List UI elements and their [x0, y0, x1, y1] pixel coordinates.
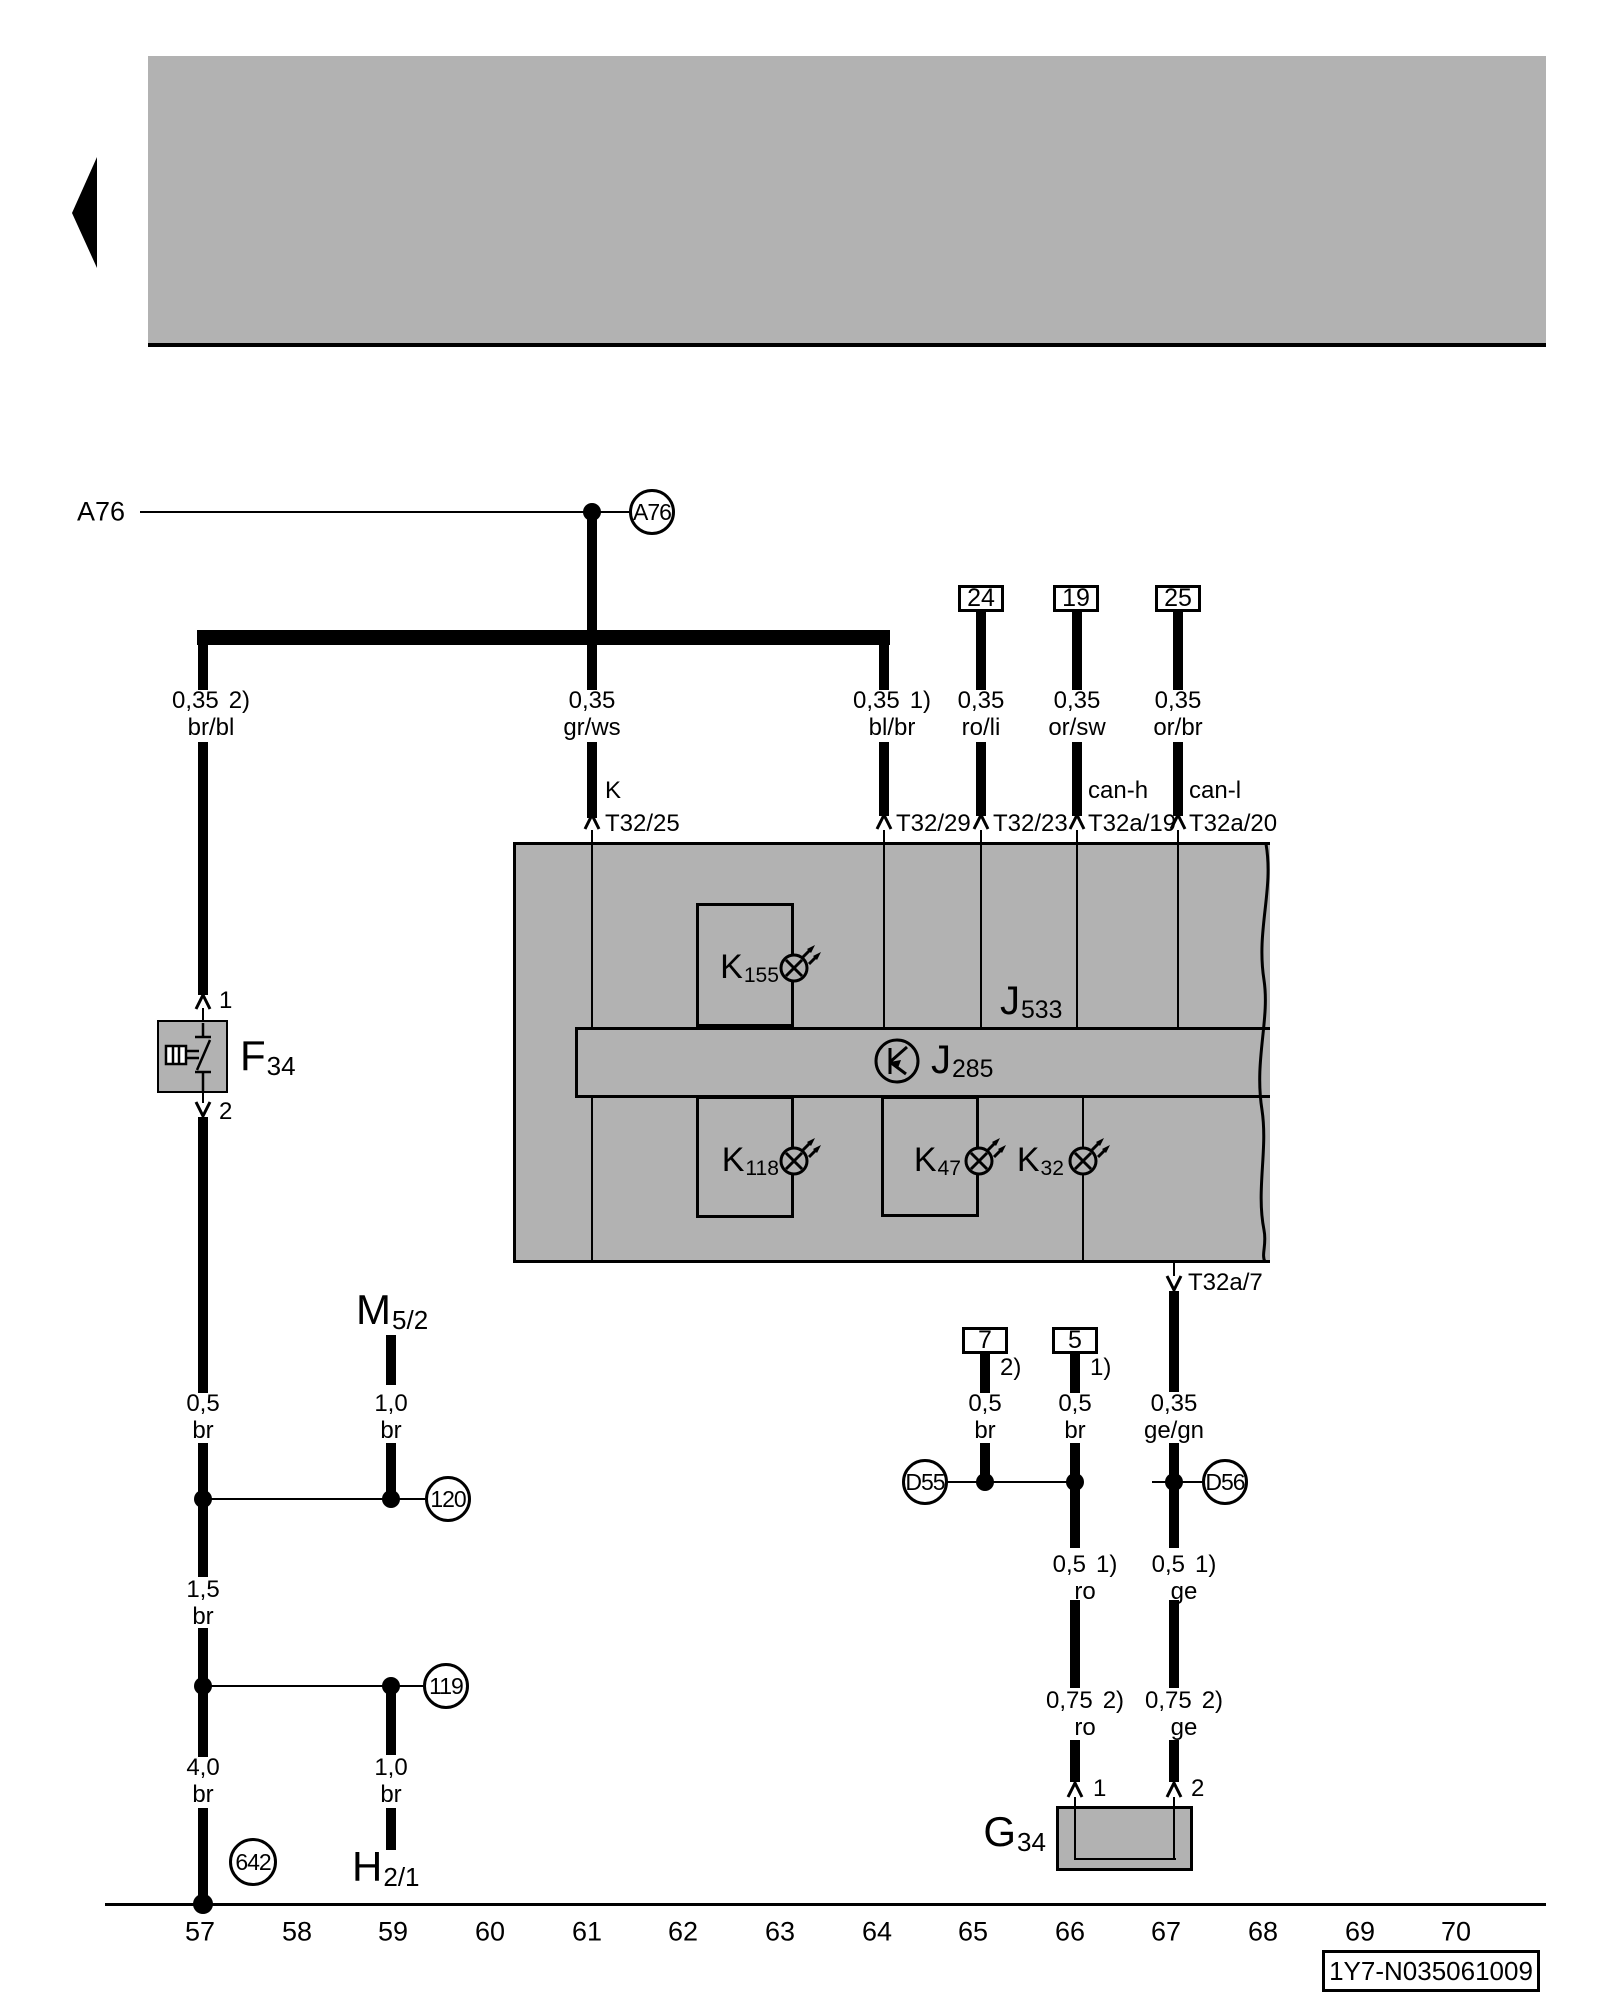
- connector-pin-icon: [1070, 815, 1084, 829]
- wire-segment: [198, 637, 208, 690]
- terminal-7-note: 2): [1000, 1354, 1021, 1382]
- wire-segment: [1072, 742, 1082, 816]
- wire-segment: [1070, 1740, 1080, 1782]
- diagram-part-number: 1Y7-N035061009: [1322, 1950, 1540, 1992]
- wire-segment: [976, 611, 986, 690]
- wire-label-10br-bottom: 1,0 br: [374, 1754, 407, 1808]
- terminal-5: 5: [1052, 1327, 1098, 1354]
- wire-segment: [1173, 611, 1183, 690]
- junction-dot: [194, 1677, 212, 1695]
- pin-t32-29-label: T32/29: [896, 810, 971, 838]
- wire-label-05br-mid: 0,5 br: [1058, 1390, 1091, 1444]
- wire-segment: [1169, 1443, 1179, 1548]
- connector-pin-icon: [196, 1102, 210, 1116]
- g34-pin-1-label: 1: [1093, 1775, 1106, 1803]
- wire-label-05ro: 0,51) ro: [1053, 1551, 1118, 1605]
- internal-line: [980, 845, 982, 1027]
- wire-segment: [198, 1443, 208, 1577]
- label-f34: F34: [240, 1032, 296, 1082]
- pin-can-h-label: can-h: [1088, 777, 1148, 805]
- wire-segment: [980, 1443, 990, 1475]
- f34-fuse-box: [157, 1020, 228, 1093]
- terminal-19: 19: [1053, 585, 1099, 612]
- wire-segment: [980, 1352, 990, 1393]
- wire-segment: [1070, 1600, 1080, 1688]
- terminal-5-note: 1): [1090, 1354, 1111, 1382]
- pin-can-l-label: can-l: [1189, 777, 1241, 805]
- label-m5-2: M5/2: [356, 1286, 428, 1336]
- junction-dot: [194, 1490, 212, 1508]
- label-k118: K118: [722, 1141, 779, 1181]
- scale-number: 70: [1421, 1917, 1491, 1948]
- wire-label-brbl: 0,352) br/bl: [172, 687, 250, 741]
- scale-number: 68: [1228, 1917, 1298, 1948]
- scale-number: 61: [552, 1917, 622, 1948]
- connector-pin-icon: [877, 815, 891, 829]
- wire-segment: [1070, 1443, 1080, 1548]
- f34-pin-2-label: 2: [219, 1098, 232, 1126]
- wire-label-grws: 0,35 gr/ws: [563, 687, 620, 741]
- header-banner: [148, 56, 1546, 343]
- junction-dot: [1165, 1473, 1183, 1491]
- wire-label-05br: 0,5 br: [186, 1390, 219, 1444]
- wire-segment: [198, 1117, 208, 1393]
- wire-segment: [198, 742, 208, 995]
- header-divider: [148, 343, 1546, 347]
- scale-number: 57: [165, 1917, 235, 1948]
- g34-sender-box: [1056, 1806, 1193, 1871]
- ground-connection-642: 642: [229, 1838, 277, 1886]
- wire-segment: [1173, 742, 1183, 816]
- pin-t32-25-label: T32/25: [605, 810, 680, 838]
- j285-instrument-insert-bar: [575, 1027, 1270, 1098]
- label-j533: J533: [1000, 979, 1062, 1025]
- internal-line: [591, 1098, 593, 1263]
- ground-dot: [193, 1894, 213, 1914]
- scale-number: 62: [648, 1917, 718, 1948]
- pin-k-label: K: [605, 777, 621, 805]
- a76-connection-line: [140, 511, 630, 513]
- splice-d55: D55: [902, 1459, 948, 1505]
- scale-number: 65: [938, 1917, 1008, 1948]
- connector-pin-icon: [1167, 1276, 1181, 1290]
- label-k32: K32: [1017, 1141, 1064, 1181]
- splice-line: [947, 1481, 1070, 1483]
- splice-d56: D56: [1202, 1459, 1248, 1505]
- pin-t32a-20-label: T32a/20: [1189, 810, 1277, 838]
- bus-bar: [197, 630, 890, 645]
- a76-left-label: A76: [77, 497, 125, 528]
- wire-label-075ge: 0,752) ge: [1145, 1687, 1223, 1741]
- wire-segment: [879, 742, 889, 816]
- wire-segment: [1169, 1600, 1179, 1688]
- terminal-25: 25: [1155, 585, 1201, 612]
- label-k155: K155: [720, 948, 779, 988]
- wire-segment: [386, 1335, 396, 1385]
- wire-label-roli: 0,35 ro/li: [958, 687, 1005, 741]
- connector-pin-icon: [974, 815, 988, 829]
- scale-number: 67: [1131, 1917, 1201, 1948]
- ground-connection-119: 119: [423, 1663, 469, 1709]
- pin-t32-23-label: T32/23: [993, 810, 1068, 838]
- terminal-24: 24: [958, 585, 1004, 612]
- f34-pin-1-label: 1: [219, 987, 232, 1015]
- internal-line: [1076, 845, 1078, 1027]
- pin-t32a-19-label: T32a/19: [1088, 810, 1176, 838]
- wire-label-05ge: 0,51) ge: [1152, 1551, 1217, 1605]
- scale-number: 66: [1035, 1917, 1105, 1948]
- ground-rail: [105, 1903, 1546, 1906]
- wire-label-035gegn: 0,35 ge/gn: [1144, 1390, 1204, 1444]
- internal-line: [1177, 845, 1179, 1027]
- wire-label-10br-top: 1,0 br: [374, 1390, 407, 1444]
- wire-label-orsw: 0,35 or/sw: [1048, 687, 1105, 741]
- junction-dot: [382, 1677, 400, 1695]
- wire-label-40br: 4,0 br: [186, 1754, 219, 1808]
- connector-pin-icon: [1068, 1783, 1082, 1797]
- wire-segment: [879, 640, 889, 690]
- label-g34: G34: [983, 1808, 1046, 1858]
- label-j285: J285: [931, 1038, 993, 1084]
- wire-segment: [386, 1685, 396, 1755]
- pin-t32a-7-label: T32a/7: [1188, 1269, 1263, 1297]
- wire-label-orbr: 0,35 or/br: [1153, 687, 1202, 741]
- wiring-diagram-page: A76 A76 24 19 25 J533 J285 K155: [0, 0, 1600, 2000]
- wire-segment: [587, 742, 597, 818]
- scale-number: 69: [1325, 1917, 1395, 1948]
- g34-pin-2-label: 2: [1191, 1775, 1204, 1803]
- terminal-7: 7: [962, 1327, 1008, 1354]
- wire-segment: [976, 742, 986, 816]
- connector-pin-icon: [196, 995, 210, 1009]
- wire-segment: [1169, 1291, 1179, 1392]
- ground-connection-120: 120: [425, 1476, 471, 1522]
- back-arrow-icon[interactable]: [72, 157, 97, 268]
- internal-line: [1082, 1098, 1084, 1263]
- scale-number: 60: [455, 1917, 525, 1948]
- internal-line: [591, 845, 593, 1027]
- junction-dot: [382, 1490, 400, 1508]
- wire-label-blbr: 0,351) bl/br: [853, 687, 931, 741]
- wire-segment: [1072, 611, 1082, 690]
- connector-a76: A76: [629, 489, 675, 535]
- connector-pin-icon: [1167, 1783, 1181, 1797]
- internal-line: [883, 845, 885, 1027]
- wire-segment: [1070, 1352, 1080, 1393]
- junction-dot: [976, 1473, 994, 1491]
- wire-label-075ro: 0,752) ro: [1046, 1687, 1124, 1741]
- label-h2-1: H2/1: [352, 1843, 420, 1893]
- scale-number: 63: [745, 1917, 815, 1948]
- wire-segment: [1169, 1740, 1179, 1782]
- scale-number: 64: [842, 1917, 912, 1948]
- wire-label-05br-left: 0,5 br: [968, 1390, 1001, 1444]
- scale-number: 58: [262, 1917, 332, 1948]
- junction-dot: [1066, 1473, 1084, 1491]
- scale-number: 59: [358, 1917, 428, 1948]
- wire-label-15br: 1,5 br: [186, 1576, 219, 1630]
- label-k47: K47: [914, 1141, 961, 1181]
- wire-segment: [587, 512, 597, 690]
- wire-segment: [198, 1808, 208, 1905]
